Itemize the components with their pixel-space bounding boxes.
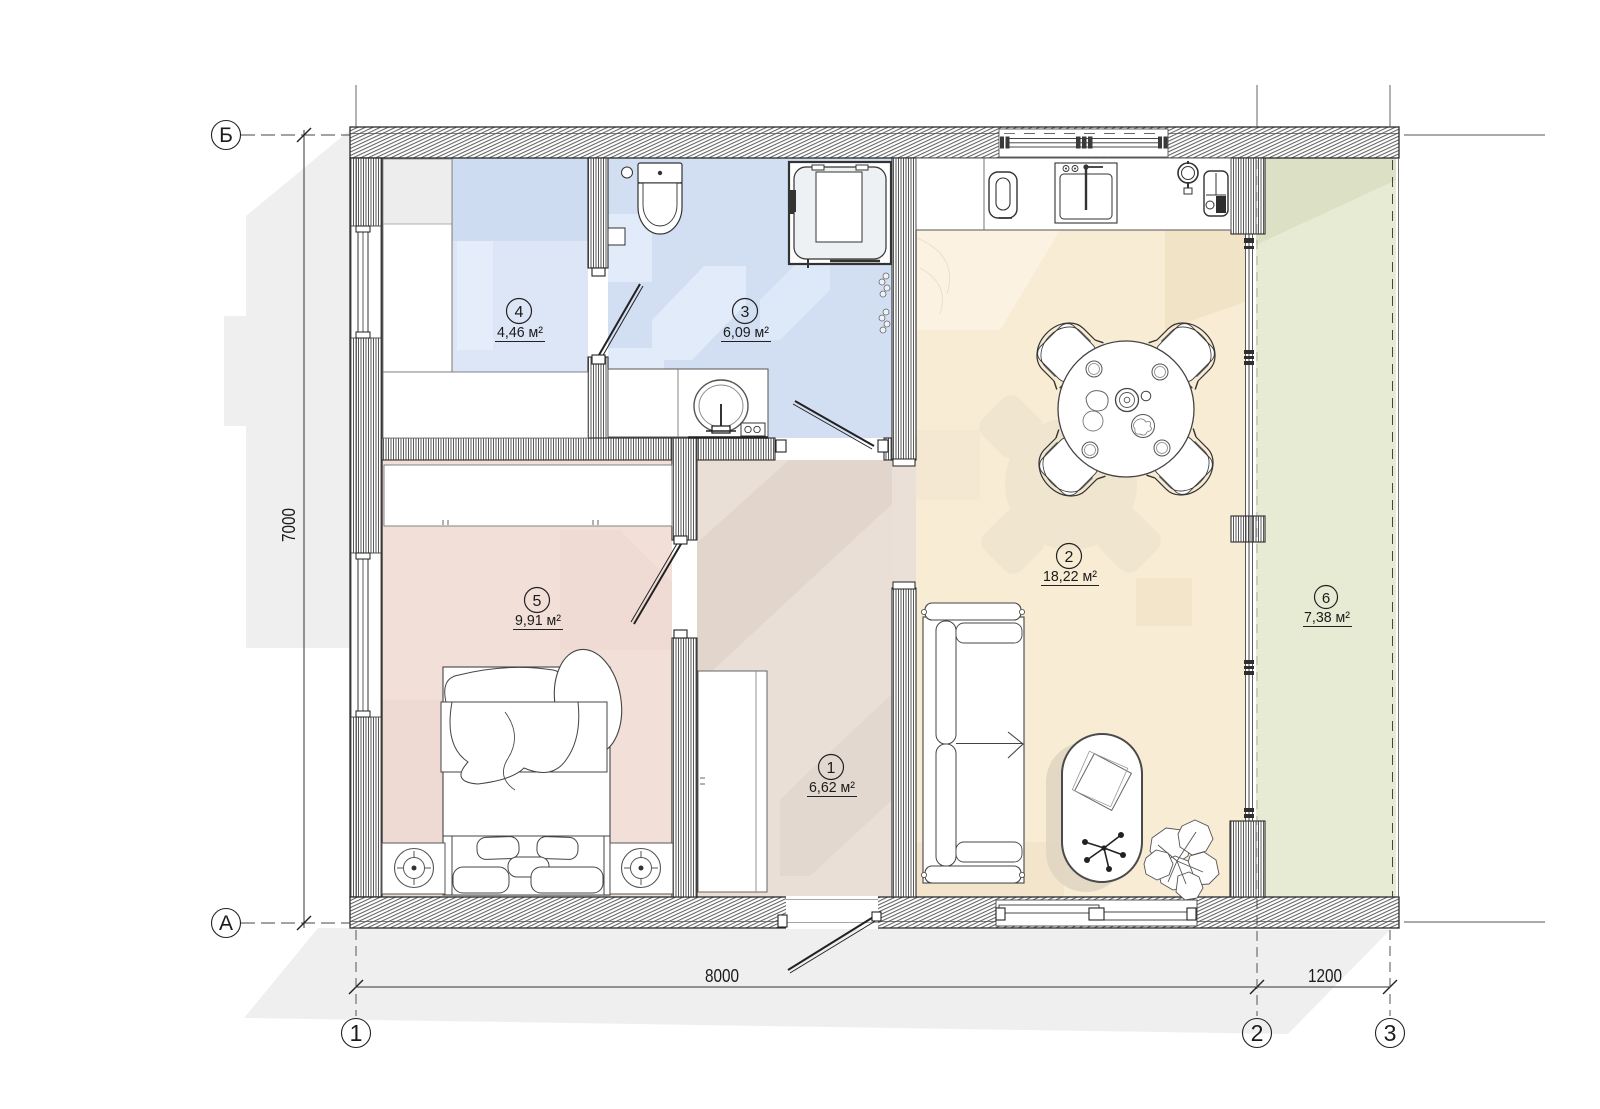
svg-text:6: 6 — [1322, 590, 1330, 607]
svg-text:6,62 м²: 6,62 м² — [809, 779, 855, 796]
svg-text:1200: 1200 — [1308, 966, 1342, 986]
svg-text:А: А — [219, 912, 233, 935]
svg-text:5: 5 — [533, 593, 542, 610]
svg-text:9,91 м²: 9,91 м² — [515, 612, 561, 629]
svg-text:3: 3 — [1384, 1020, 1397, 1046]
svg-text:2: 2 — [1251, 1020, 1264, 1046]
svg-text:1: 1 — [827, 760, 836, 777]
svg-text:Б: Б — [219, 124, 233, 147]
svg-text:8000: 8000 — [705, 966, 739, 986]
svg-text:1: 1 — [350, 1020, 363, 1046]
svg-text:4: 4 — [515, 304, 524, 321]
svg-text:7000: 7000 — [279, 508, 299, 542]
svg-text:7,38 м²: 7,38 м² — [1304, 609, 1350, 626]
svg-text:6,09 м²: 6,09 м² — [723, 324, 769, 341]
svg-text:2: 2 — [1065, 549, 1074, 566]
svg-text:3: 3 — [741, 304, 750, 321]
svg-text:4,46 м²: 4,46 м² — [497, 324, 543, 341]
svg-text:18,22 м²: 18,22 м² — [1043, 568, 1097, 585]
